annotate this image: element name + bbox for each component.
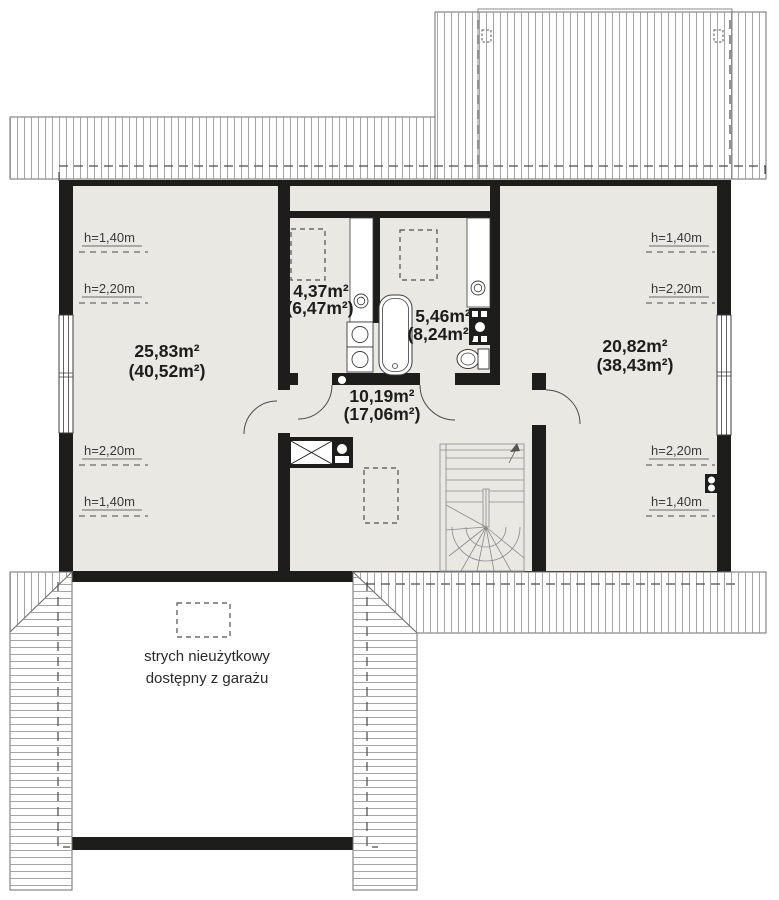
wall-top bbox=[59, 180, 731, 186]
wall-left-lower bbox=[59, 433, 73, 571]
toilet-icon bbox=[457, 349, 489, 369]
wall-right-partition-cap bbox=[532, 373, 546, 390]
room-label-left-total: (40,52m²) bbox=[129, 361, 206, 381]
garage-attic-floor bbox=[72, 581, 353, 837]
attic-note-line1: strych nieużytkowy bbox=[144, 648, 270, 665]
hall-cabinet-unit bbox=[287, 437, 353, 468]
wall-left-upper bbox=[59, 180, 73, 315]
room-label-bathroom-area: 5,46m² bbox=[415, 306, 471, 326]
floor-plan-drawing: 25,83m² (40,52m²) 4,37m² (6,47m²) 5,46m²… bbox=[0, 0, 779, 900]
room-label-left-area: 25,83m² bbox=[134, 341, 199, 361]
washer-dryer-icon bbox=[347, 322, 373, 372]
wall-right-partition-lower bbox=[532, 425, 546, 571]
window-right bbox=[717, 315, 731, 435]
height-label-left-1: h=1,40m bbox=[84, 230, 135, 245]
height-label-right-3: h=2,20m bbox=[651, 443, 702, 458]
floor-plan: 25,83m² (40,52m²) 4,37m² (6,47m²) 5,46m²… bbox=[0, 0, 779, 900]
window-left bbox=[59, 315, 73, 433]
height-label-left-2: h=2,20m bbox=[84, 281, 135, 296]
door-pivot-dot bbox=[338, 376, 346, 384]
wall-above-small-rooms bbox=[280, 211, 500, 218]
attic-note-line2: dostępny z garażu bbox=[146, 670, 269, 687]
room-label-right-area: 20,82m² bbox=[602, 336, 667, 356]
room-label-bathroom-total: (8,24m²) bbox=[407, 324, 474, 344]
room-label-right-total: (38,43m²) bbox=[597, 355, 674, 375]
wall-partition-left-upper bbox=[278, 186, 290, 390]
height-label-right-1: h=1,40m bbox=[651, 230, 702, 245]
room-label-hall-total: (17,06m²) bbox=[344, 404, 421, 424]
wall-bathroom-right bbox=[490, 186, 500, 383]
height-label-left-3: h=2,20m bbox=[84, 443, 135, 458]
wall-right-upper bbox=[717, 180, 731, 315]
wall-right-lower bbox=[717, 435, 731, 571]
room-label-wardrobe-total: (6,47m²) bbox=[286, 298, 353, 318]
flue-icon bbox=[705, 474, 718, 493]
wall-garage-bottom bbox=[72, 837, 353, 850]
height-label-left-4: h=1,40m bbox=[84, 494, 135, 509]
wall-hall-top-1 bbox=[278, 373, 298, 385]
height-label-right-4: h=1,40m bbox=[651, 494, 702, 509]
room-label-hall-area: 10,19m² bbox=[349, 386, 414, 406]
wall-hall-top-3 bbox=[455, 373, 500, 385]
height-label-right-2: h=2,20m bbox=[651, 281, 702, 296]
washbasin-bathroom-icon bbox=[471, 281, 485, 295]
washbasin-wardrobe-icon bbox=[354, 294, 368, 308]
